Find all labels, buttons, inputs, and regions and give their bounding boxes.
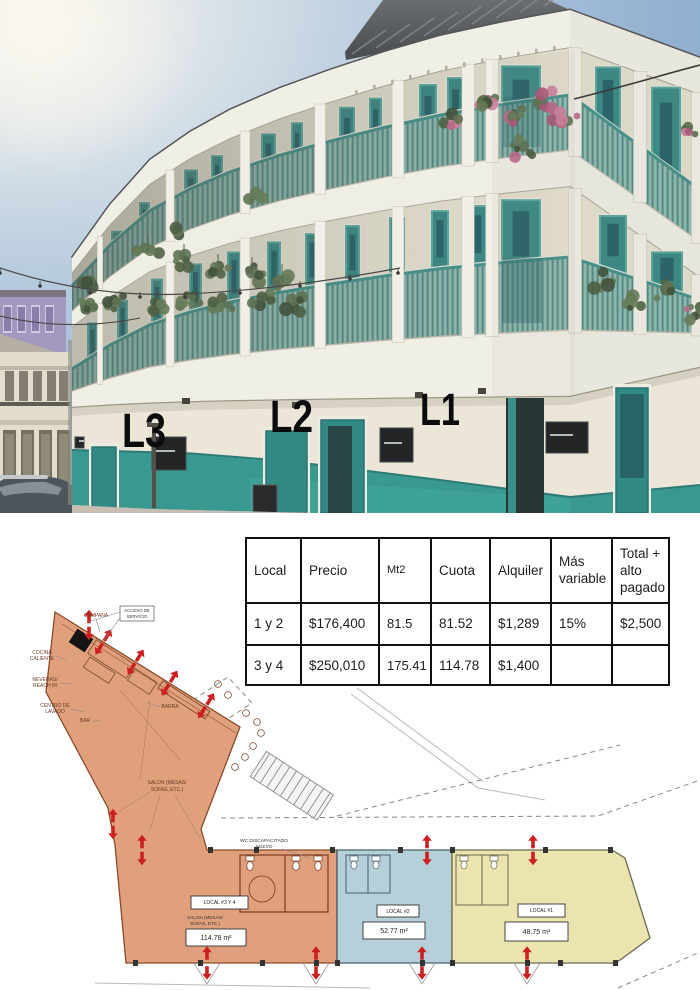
svg-text:SALON (MESAS/: SALON (MESAS/	[148, 780, 188, 786]
svg-text:SOFAS, ETC.): SOFAS, ETC.)	[151, 787, 184, 793]
svg-text:114.78 m²: 114.78 m²	[201, 935, 233, 942]
svg-text:CAMPANA: CAMPANA	[84, 613, 109, 619]
svg-text:CALIENTE: CALIENTE	[30, 656, 55, 662]
svg-text:LAVADO: LAVADO	[45, 709, 65, 715]
svg-text:BARRA: BARRA	[161, 704, 179, 710]
svg-text:48.75 m²: 48.75 m²	[523, 929, 551, 936]
svg-text:WC DISCAPACITADO: WC DISCAPACITADO	[240, 838, 288, 844]
svg-text:REACH IN: REACH IN	[33, 683, 57, 689]
svg-text:L2: L2	[270, 391, 313, 442]
svg-text:ACCESO DE: ACCESO DE	[124, 608, 150, 613]
svg-text:SOFAS, ETC.): SOFAS, ETC.)	[190, 921, 220, 926]
svg-text:SERVICIO: SERVICIO	[127, 614, 148, 619]
svg-text:L1: L1	[420, 384, 460, 435]
svg-text:LOCAL #3 Y 4: LOCAL #3 Y 4	[204, 900, 236, 906]
svg-text:LOCAL #2: LOCAL #2	[386, 909, 409, 915]
svg-text:SALON (MESAS/: SALON (MESAS/	[187, 915, 223, 920]
svg-text:52.77 m²: 52.77 m²	[380, 928, 408, 935]
svg-text:NUEVO: NUEVO	[255, 844, 272, 850]
svg-text:L3: L3	[122, 405, 166, 458]
svg-text:LOCAL #1: LOCAL #1	[530, 908, 553, 914]
svg-text:BAR: BAR	[80, 718, 91, 724]
